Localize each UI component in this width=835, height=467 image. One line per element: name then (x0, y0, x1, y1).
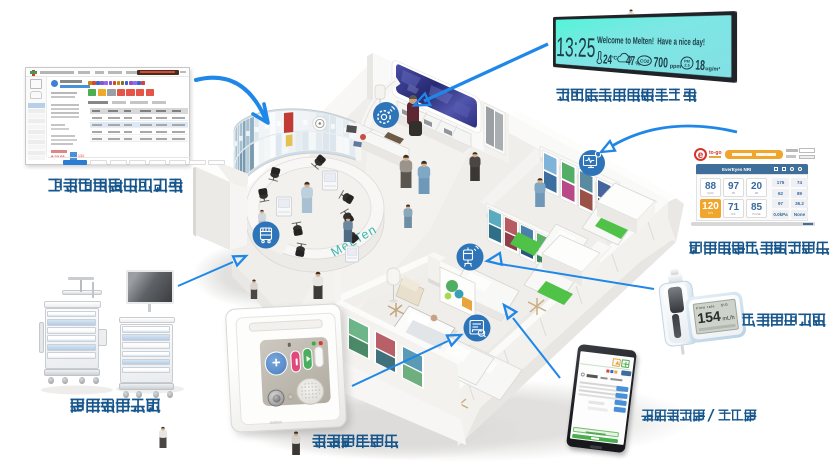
svg-text:ug/m³: ug/m³ (705, 65, 721, 73)
svg-text:CO2: CO2 (640, 58, 650, 64)
svg-text:2.5: 2.5 (684, 63, 689, 67)
svg-text:700: 700 (653, 55, 668, 71)
svg-text:ppm: ppm (670, 64, 682, 71)
svg-text:%: % (635, 61, 640, 67)
svg-text:°C: °C (611, 55, 617, 61)
svg-text:47: 47 (626, 54, 636, 69)
svg-text:13:25: 13:25 (556, 32, 596, 64)
svg-text:Welcome to Melten! Have a nic: Welcome to Melten! Have a nice day! (597, 35, 705, 48)
